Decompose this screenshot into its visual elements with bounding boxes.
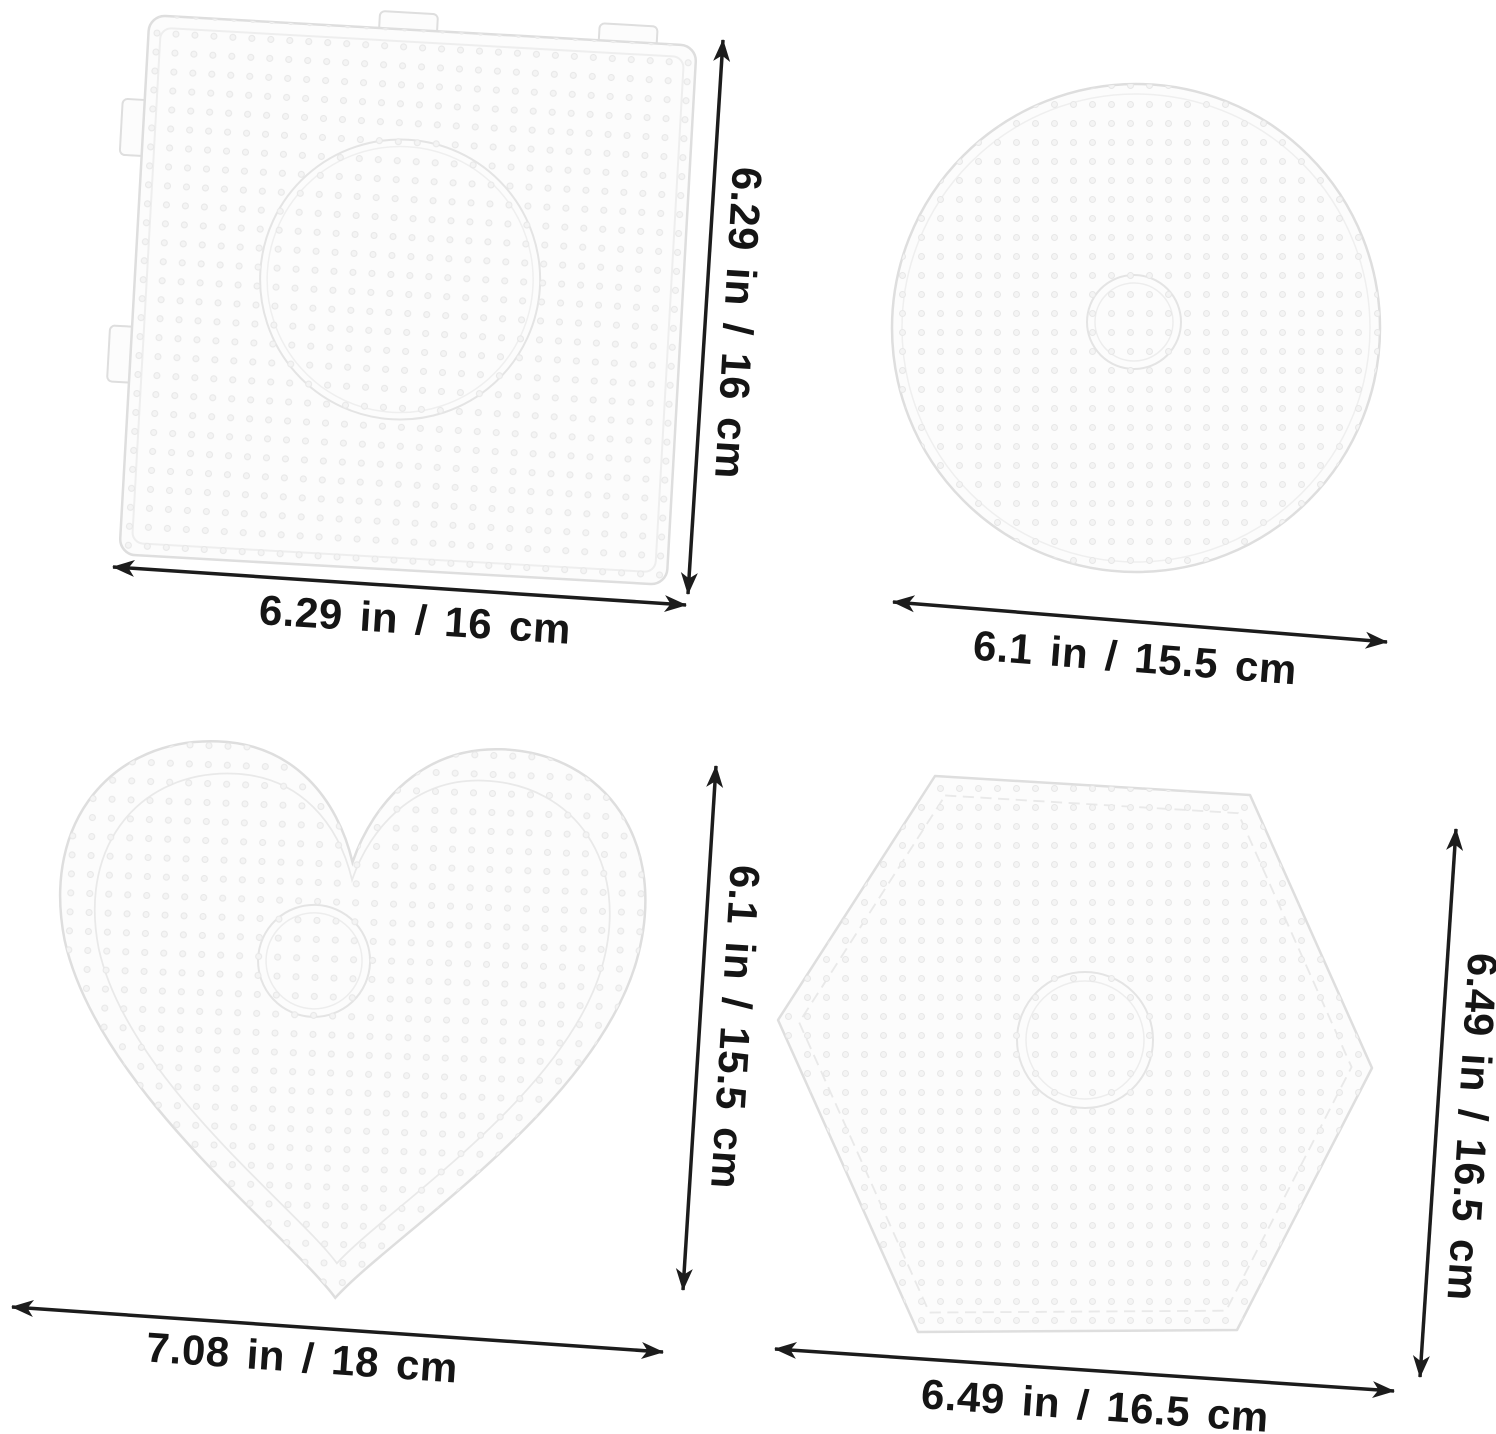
product-dimension-image: 6.29 in / 16 cm 6.29 in / 16 cm 6.1 in /… (0, 0, 1496, 1434)
heart-pegboard-shape (46, 734, 650, 1308)
square-pegboard-shape (97, 0, 697, 585)
hexagon-pegboard-shape (778, 776, 1372, 1332)
circle-pegboard-shape (892, 84, 1380, 572)
